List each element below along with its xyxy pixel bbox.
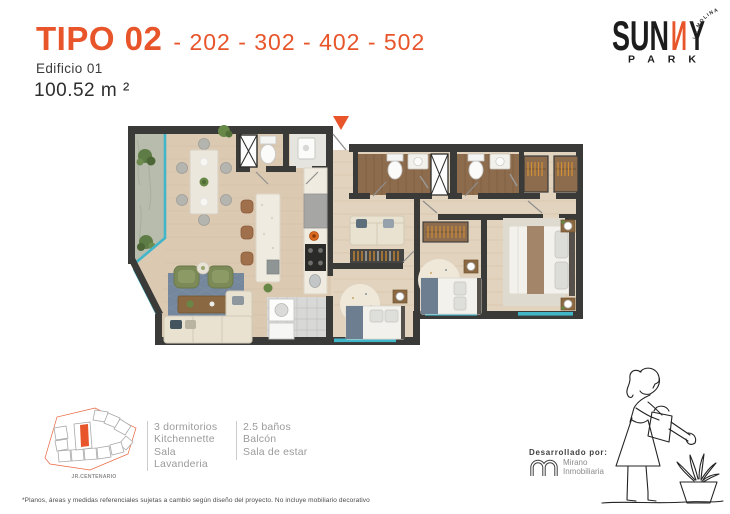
mirano-logo-icon — [528, 458, 560, 478]
brand-accent-letter: И — [671, 12, 687, 59]
girl-watering-plant-illustration — [596, 362, 728, 510]
highlighted-unit — [80, 424, 89, 447]
bed-pillow — [454, 282, 466, 295]
divider — [236, 421, 237, 460]
watering-can — [648, 406, 696, 444]
features-column-2: 2.5 baños Balcón Sala de estar — [243, 421, 307, 458]
stove — [305, 244, 326, 271]
bar-stool — [241, 252, 253, 265]
type-label: TIPO 02 — [36, 20, 162, 58]
living-room — [164, 262, 252, 343]
lamp-icon — [564, 300, 572, 308]
bed-pillow — [370, 310, 383, 322]
footnote: *Planos, áreas y medidas referenciales s… — [22, 497, 370, 504]
feature-item: Sala — [154, 446, 217, 458]
floorplan-sheet: TIPO 02 - 202 - 302 - 402 - 502 Edificio… — [0, 0, 730, 514]
fridge — [304, 194, 327, 228]
bar-stool — [241, 200, 253, 213]
kitchen-sink — [310, 275, 321, 288]
building-label: Edificio 01 — [36, 61, 103, 76]
brand-sub-text: PARK — [628, 54, 709, 65]
bed-runner — [527, 226, 544, 294]
bed-pillow — [385, 310, 398, 322]
unit-numbers: - 202 - 302 - 402 - 502 — [173, 29, 425, 56]
sofa-pillow — [383, 219, 394, 228]
sink-icon — [490, 154, 510, 169]
bed-blanket — [421, 278, 438, 314]
bed-pillow — [555, 231, 568, 258]
lamp-icon — [467, 263, 475, 271]
feature-item: Balcón — [243, 433, 307, 445]
sofa-pillow — [185, 320, 196, 329]
feature-item: 3 dormitorios — [154, 421, 217, 433]
divider — [147, 421, 148, 471]
master-bedroom — [503, 218, 575, 310]
bar-stool — [241, 226, 253, 239]
sofa-pillow — [232, 296, 244, 305]
headboard — [569, 224, 575, 296]
toilet-icon — [468, 154, 484, 179]
bed-pillow — [555, 262, 568, 289]
street-label: JR.CENTENARIO — [72, 474, 117, 480]
lamp-icon — [564, 222, 572, 230]
feature-item: 2.5 baños — [243, 421, 307, 433]
bedroom-2 — [340, 284, 407, 339]
brand-text-start: SUN — [612, 12, 669, 59]
potted-plant — [677, 454, 719, 503]
page-title: TIPO 02 - 202 - 302 - 402 - 502 — [36, 20, 425, 58]
bed-pillow — [454, 297, 466, 310]
sofa-pillow — [170, 320, 182, 329]
site-buildings — [54, 410, 133, 462]
feature-item: Sala de estar — [243, 446, 307, 458]
entrance-marker-icon — [333, 116, 349, 130]
area-label: 100.52 m ² — [34, 80, 130, 102]
kitchen-plant-icon — [264, 284, 273, 293]
headboard — [401, 306, 405, 339]
lamp-icon — [396, 293, 404, 301]
feature-item: Lavanderia — [154, 458, 217, 470]
floor-plan — [120, 110, 590, 355]
feature-item: Kitchennette — [154, 433, 217, 445]
brand-logo: SUN И Y PARK LA MOLINA — [600, 6, 730, 64]
sink-icon — [298, 138, 315, 159]
bed-blanket — [346, 306, 363, 339]
entrance-door — [333, 134, 346, 150]
features-column-1: 3 dormitorios Kitchennette Sala Lavander… — [154, 421, 217, 471]
laundry-unit — [269, 323, 294, 339]
sink-icon — [408, 154, 428, 169]
laundry — [269, 299, 294, 339]
toilet-icon — [260, 136, 276, 164]
site-plan: JR.CENTENARIO — [38, 404, 148, 482]
toilet-icon — [387, 154, 403, 179]
skirt — [616, 418, 660, 466]
sofa-pillow — [356, 219, 367, 228]
coffee-table — [178, 296, 228, 313]
headboard — [477, 278, 481, 314]
